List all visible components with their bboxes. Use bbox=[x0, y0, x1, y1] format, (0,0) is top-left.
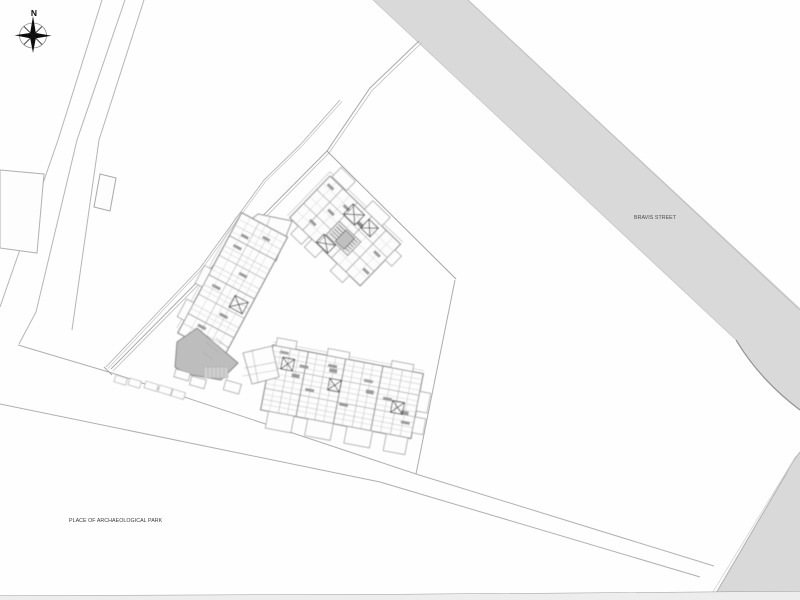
svg-text:PLACE OF ARCHAEOLOGICAL PARK: PLACE OF ARCHAEOLOGICAL PARK bbox=[69, 518, 163, 524]
svg-text:N: N bbox=[31, 8, 37, 18]
svg-text:BRAVIS STREET: BRAVIS STREET bbox=[634, 215, 677, 221]
